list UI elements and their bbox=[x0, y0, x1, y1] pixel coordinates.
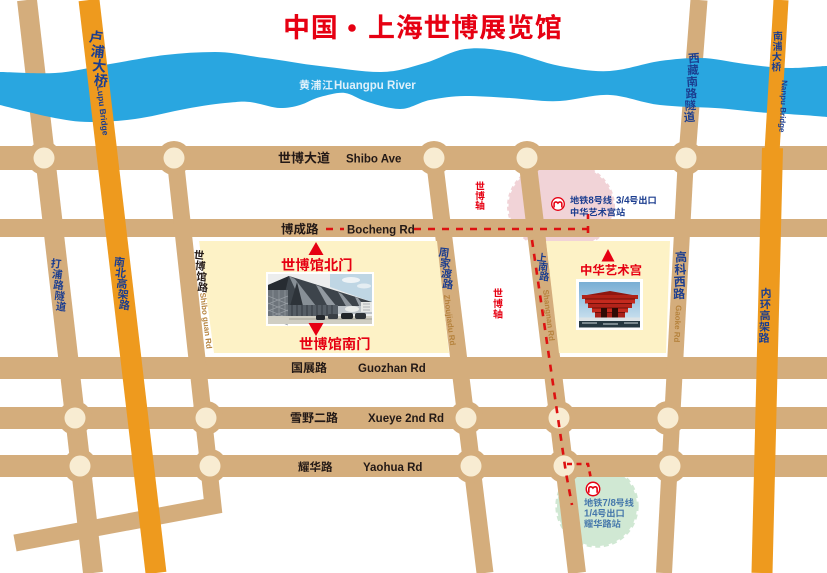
svg-text:Guozhan Rd: Guozhan Rd bbox=[358, 363, 426, 375]
svg-text:Huangpu River: Huangpu River bbox=[334, 80, 416, 92]
svg-text:8: 8 bbox=[588, 196, 594, 207]
svg-text:7/8: 7/8 bbox=[602, 498, 616, 509]
svg-text:Shibo Ave: Shibo Ave bbox=[346, 154, 401, 166]
svg-text:Yaohua Rd: Yaohua Rd bbox=[363, 462, 422, 474]
svg-text:1/4: 1/4 bbox=[584, 509, 598, 520]
svg-text:Bocheng Rd: Bocheng Rd bbox=[347, 225, 415, 237]
svg-text:3/4: 3/4 bbox=[616, 196, 630, 207]
svg-text:Xueye 2nd Rd: Xueye 2nd Rd bbox=[368, 413, 444, 425]
